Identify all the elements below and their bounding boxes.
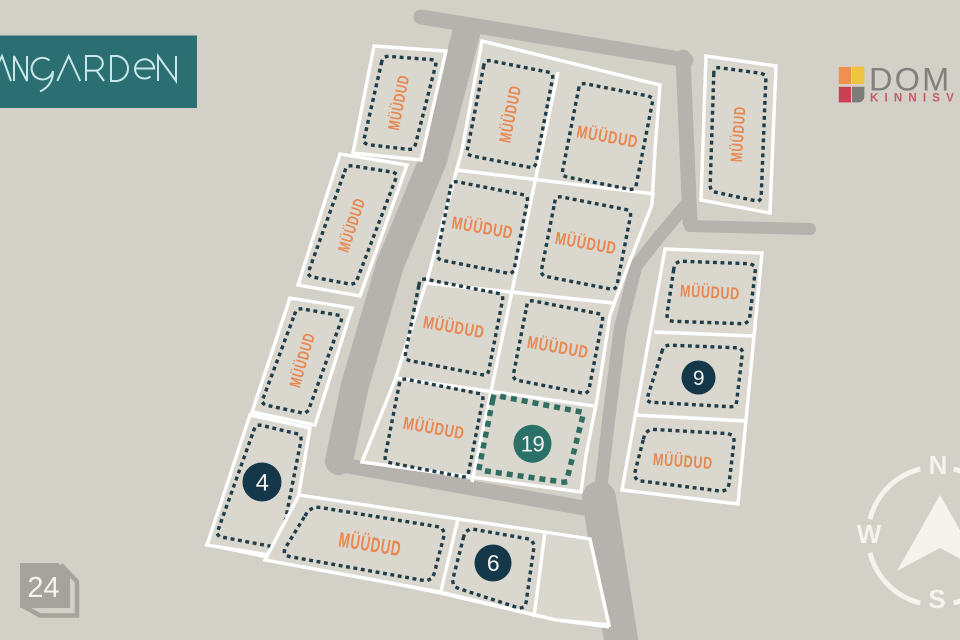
svg-text:6: 6 [487,550,499,576]
svg-text:S: S [928,584,945,614]
svg-text:9: 9 [693,367,704,390]
svg-text:4: 4 [256,470,269,497]
svg-text:W: W [857,519,882,549]
svg-text:19: 19 [521,432,545,457]
svg-text:N: N [929,450,948,480]
svg-text:24: 24 [27,572,59,604]
svg-text:MÜÜDUD: MÜÜDUD [680,281,741,303]
svg-text:KINNISV: KINNISV [870,93,960,105]
